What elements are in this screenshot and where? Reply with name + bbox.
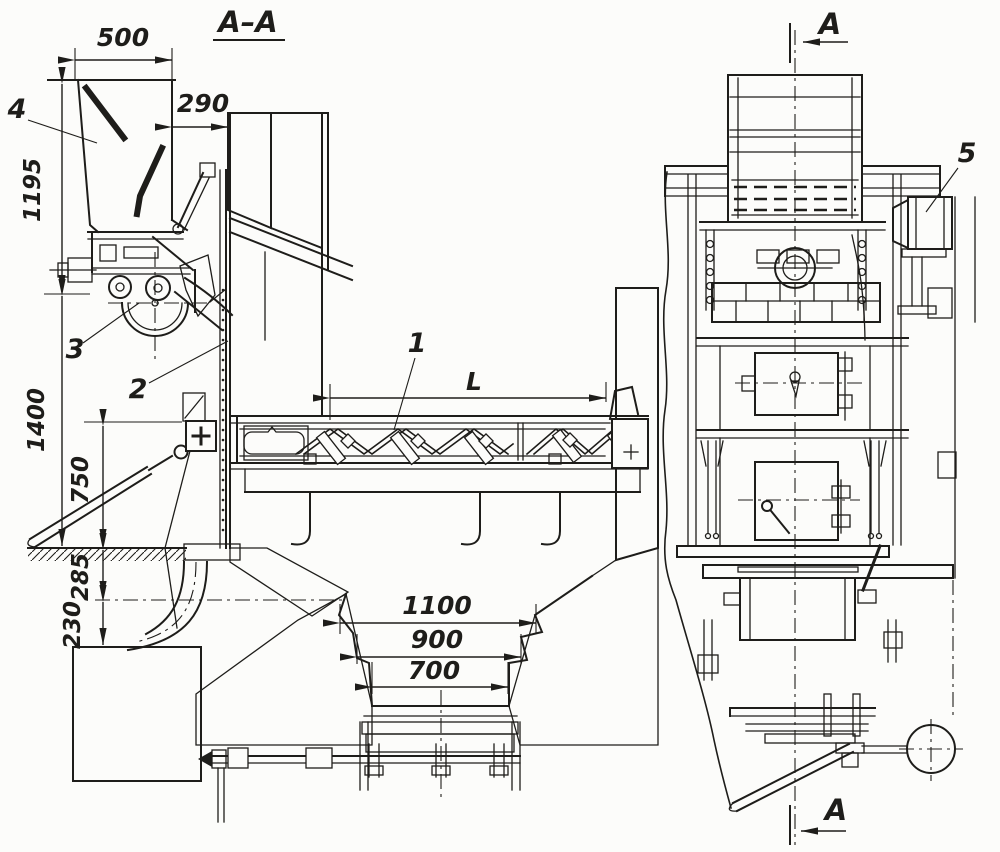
section-marker-top: A bbox=[790, 7, 848, 62]
cut-label-top: A bbox=[817, 7, 841, 41]
drive-opening bbox=[244, 427, 304, 454]
section-title: A–A bbox=[216, 5, 277, 39]
lower-bracket bbox=[183, 393, 205, 421]
blast-duct-elbow bbox=[128, 562, 207, 650]
cut-label-bottom: A bbox=[823, 793, 847, 827]
dim-axis-to-bin: 230 bbox=[60, 601, 103, 649]
dim-lever-height: 750 bbox=[68, 422, 182, 546]
control-lever bbox=[28, 441, 198, 547]
feeder-roller-right bbox=[146, 276, 170, 300]
svg-text:1: 1 bbox=[408, 328, 427, 359]
rivet-line bbox=[222, 289, 225, 532]
svg-text:4: 4 bbox=[7, 94, 27, 125]
svg-text:1195: 1195 bbox=[20, 158, 46, 222]
grate-drive-rod bbox=[198, 744, 520, 822]
svg-text:3: 3 bbox=[66, 334, 85, 365]
base-frame bbox=[677, 546, 953, 680]
feeder-roller-left bbox=[109, 276, 131, 298]
pedestal bbox=[740, 578, 855, 640]
part-label-3: 3 bbox=[66, 303, 139, 365]
technical-drawing: A–A A A 500 290 1195 1400 750 285 bbox=[0, 0, 1000, 852]
svg-text:700: 700 bbox=[408, 656, 460, 685]
hanger-hook bbox=[292, 492, 310, 544]
floor-line bbox=[28, 544, 240, 561]
hopper-deflector-lower bbox=[137, 148, 162, 214]
dim-conveyor-length: L bbox=[330, 367, 606, 420]
svg-text:1400: 1400 bbox=[24, 388, 50, 452]
part-label-2: 2 bbox=[129, 341, 228, 405]
foundation-right-wall bbox=[509, 288, 658, 745]
svg-text:285: 285 bbox=[68, 553, 94, 601]
hopper bbox=[48, 80, 187, 232]
hanger-hook bbox=[542, 492, 560, 544]
plus-box bbox=[186, 421, 216, 451]
svg-text:5: 5 bbox=[958, 138, 977, 169]
broken-edge bbox=[663, 172, 731, 808]
hanger-hook bbox=[462, 492, 480, 544]
svg-text:500: 500 bbox=[97, 23, 149, 52]
ash-pit bbox=[198, 690, 520, 822]
svg-text:2: 2 bbox=[129, 374, 148, 405]
part-label-1: 1 bbox=[394, 328, 426, 430]
section-marker-bottom: A bbox=[790, 793, 847, 844]
svg-text:900: 900 bbox=[411, 625, 463, 654]
svg-text:L: L bbox=[466, 367, 482, 396]
motor bbox=[893, 197, 952, 314]
discharge-chute bbox=[175, 278, 232, 330]
dim-front-height: 1400 bbox=[24, 296, 62, 546]
svg-text:290: 290 bbox=[177, 89, 229, 118]
svg-text:750: 750 bbox=[68, 456, 94, 504]
dim-pit-bottom: 700 bbox=[372, 656, 508, 694]
drawing-sheet: A–A A A 500 290 1195 1400 750 285 bbox=[0, 0, 1000, 852]
section-view bbox=[28, 80, 658, 822]
hopper-deflector-upper bbox=[86, 88, 124, 138]
hanger-fork-right bbox=[864, 441, 886, 539]
dim-hopper-to-wall: 290 bbox=[172, 89, 229, 127]
screw-paddles bbox=[317, 430, 637, 465]
fire-door-lower bbox=[701, 438, 886, 545]
ash-bin bbox=[73, 647, 201, 781]
right-wall bbox=[928, 197, 975, 718]
svg-text:1100: 1100 bbox=[402, 591, 472, 620]
foundation-left bbox=[196, 548, 372, 745]
conveyor-support bbox=[230, 454, 648, 544]
screw-conveyor bbox=[230, 387, 648, 544]
front-view bbox=[663, 30, 975, 845]
furnace-front-wall bbox=[228, 113, 352, 416]
dim-hopper-width: 500 bbox=[75, 23, 172, 80]
grate-teeth bbox=[366, 734, 514, 752]
dim-hopper-height: 1195 bbox=[20, 84, 90, 294]
upper-strut bbox=[173, 163, 215, 234]
top-beam bbox=[665, 166, 940, 196]
svg-text:230: 230 bbox=[60, 601, 86, 649]
